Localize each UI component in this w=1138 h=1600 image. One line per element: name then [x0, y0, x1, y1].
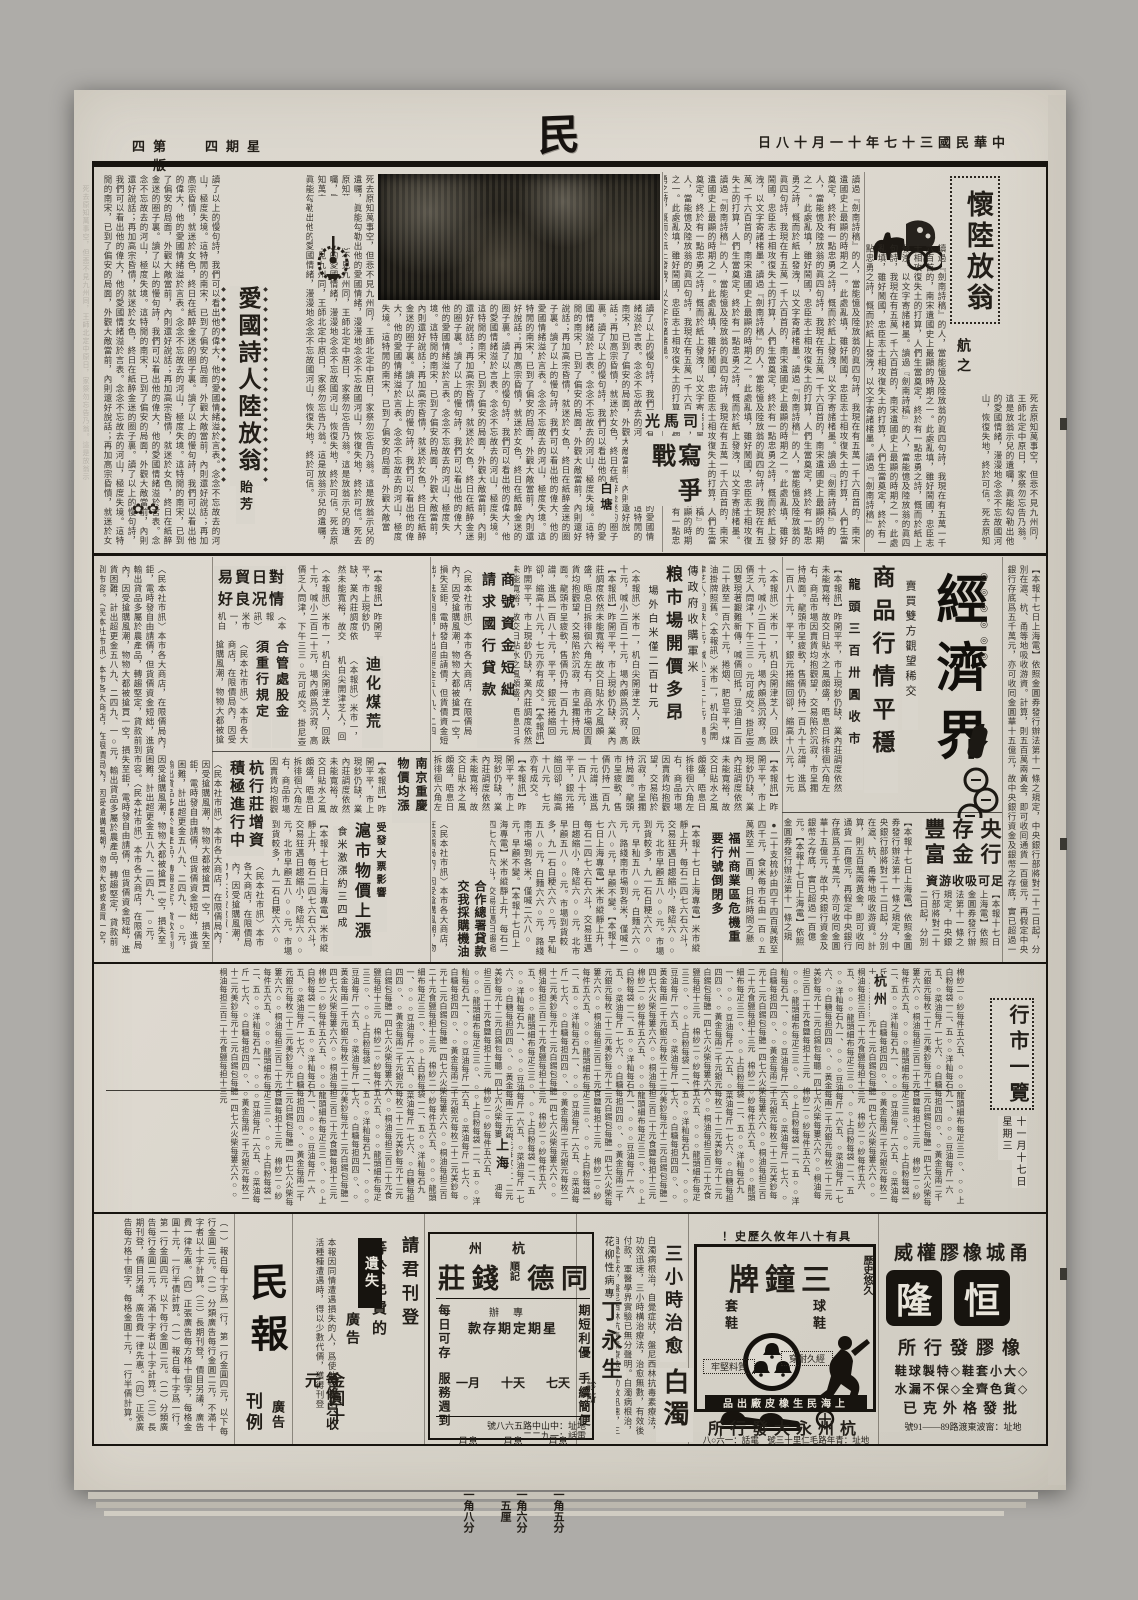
headline-grain-kicker: 傳政府收購軍米: [684, 565, 700, 701]
ad-tongde-char: 錢: [472, 1257, 499, 1296]
ad-hengda-name-2: 隆: [896, 1272, 932, 1324]
ad-tongde-right1: 期短利優: [576, 1304, 593, 1364]
ornament-diamond-chain: ◆◆◆◆◆◆◆◆◆◆◆◆◆◆◆◆◆◆◆◆: [262, 286, 269, 532]
athlete-illustration-icon: [801, 1291, 875, 1397]
body-text: 【本報十七日上海專電】米市縱靜上升，每石二四七六石六斗，交易狂邁日趨縮小，降紹六…: [268, 820, 330, 956]
column-rule: [212, 557, 213, 962]
ad-minbao-guanggao: 廣告: [268, 1400, 287, 1444]
headline-central-bank-sub: 足可吸收游資: [918, 872, 1004, 889]
byline-sima-author: 白塘: [598, 482, 615, 522]
rate-value: 一角八分: [460, 1488, 476, 1534]
byline-aiguo-author: 貽芳: [236, 480, 255, 524]
column-rule: [864, 172, 865, 552]
ad-tongde-col: 一月 月息 一角八分: [456, 1338, 480, 1414]
article-divider: [212, 751, 430, 752]
ad-hengda-kicker: 甬城橡膠權威: [884, 1238, 1042, 1265]
headline-coop: 合作總署貸款交我採購機油: [452, 880, 488, 958]
ad-zhongpai-left-label: 套鞋: [721, 1299, 740, 1343]
ad-zhongpai-maker: 上海民生橡皮廠出品: [723, 1395, 849, 1410]
body-text: 〈本報訊〉米市一，机白尖開津芝人，回跌十元，喊小二百二十元，場內頗爲沉寂，高價乏…: [334, 656, 360, 748]
headline-lead-title: 商品行情平穩: [864, 565, 898, 793]
ad-tongde-char: 同: [561, 1257, 588, 1296]
article-divider: [432, 751, 780, 752]
body-text: 【本報訊】昨開平平，市上現鈔仍缺，業內莊調度依然未能寬裕，故交日貼水之風頗盛，晤…: [514, 565, 618, 748]
headline-sima-title: 寫戰爭: [628, 436, 704, 506]
headline-japan-trade-2: 情况良好: [214, 588, 286, 609]
column-rule: [782, 557, 783, 962]
headline-grain-title: 粮市場開價多昂: [660, 565, 685, 748]
ad-ding-clinic: 診所: [582, 1380, 597, 1420]
ad-hengda-line2: ◇大小套鞋◇特製球鞋: [882, 1362, 1042, 1379]
headline-central-bank: 央行存金豐富: [922, 818, 1004, 870]
body-text: 【本報訊】昨開平平，市上現鈔仍缺，業內莊調度依然未能寬裕，故交日貼水之風頗盛，晤…: [432, 755, 780, 815]
headline-hu-sub: 食米激漲約三四成: [333, 826, 348, 956]
section-divider: [92, 553, 1048, 556]
ad-hengda-name-1: 恒: [964, 1272, 1000, 1324]
ornament-diamond-chain: ◆◆◆◆◆◆◆◆◆◆◆◆◆◆◆◆◆◆◆◆: [220, 286, 227, 532]
table-divider: [106, 1090, 966, 1091]
headline-hu-title: 滬市物價上漲: [348, 822, 372, 956]
body-text: 〈民本社市訊〉本市各大商店，在限價局內，因受搶購風潮，物物大都被搶買一空，損失至…: [226, 862, 266, 956]
column-rule: [234, 1214, 235, 1444]
ad-zhongpai-address: 地址：青年路毛仁里十三號 電話：一六○八: [696, 1434, 876, 1446]
byline-huailu-author: 航之: [952, 338, 972, 390]
ad-tongde-small: 順記: [506, 1261, 521, 1291]
ornament-ring-chain: ◎◎◎◎◎◎: [980, 572, 990, 692]
horse-cart-icon: [868, 180, 942, 240]
ad-hengda-address: 號91——89路渡東波甯：址地: [886, 1420, 1040, 1433]
market-table-body: 棉紗二○紗每件五六五、○○○龍頭細布每疋三三○、○○上白粉每袋一二、五○○洋籼每…: [106, 968, 966, 1206]
column-rule: [430, 557, 431, 962]
ad-zhongpai-history: 具有十八年攸久歷史！: [698, 1228, 876, 1244]
ad-lost-line5: 金圓十元: [298, 1372, 346, 1442]
ad-tongde-box: 杭州 同 德 順記 錢 莊 期短利優 手續簡便 每日可存 服務週到 專辦 星期定…: [428, 1232, 594, 1440]
section-divider: [92, 962, 1048, 964]
ad-hengda-line3: ◇貨色齊全◇保不漏水: [882, 1380, 1042, 1397]
headline-japan-trade-1: 對日貿易: [214, 566, 286, 587]
market-label-shanghai: 上海: [492, 1138, 511, 1184]
market-list-title: 行市一覽: [990, 998, 1034, 1110]
body-text: 〈本報訊〉米市一，机白尖開津芝人，回跌十元，喊小二百二十元，場內頗爲沉寂，高價乏…: [620, 565, 642, 748]
body-text: 【本報訊】昨開平平，市上現鈔仍缺，業內莊調度依然未能寬裕，故交日貼水之風頗盛，晤…: [784, 565, 844, 795]
ad-tongde-rule: [436, 1416, 590, 1417]
edge-mark: [1060, 418, 1067, 430]
headline-loan-2: 請求國行貸款: [477, 572, 497, 748]
body-text: 【本報訊】昨開平平，市上現鈔仍缺，業內莊調度依然未能寬裕，故交日貼水之風頗盛，晤…: [268, 757, 388, 817]
body-text: 【本報十七日上海電】依照金圓券發行辦法第十一條之規定，中央銀行部將對二十二日起，…: [784, 818, 914, 956]
bottle-coins-icon: [952, 688, 1002, 796]
shoes-illustration-icon: [717, 1363, 803, 1397]
ad-zhongpai-corner: 歷史悠久: [847, 1255, 873, 1295]
ad-tongde-table: 七天 月息 一角五分 十天 月息 一角六分五厘 一月 月息 一角八分: [456, 1338, 570, 1414]
ad-baizhuo-body: 白濁病根治，自覺症狀，盤尼西林抗毒素療法，功效迅速，三小時構治療法，治愈無數，有…: [616, 1236, 658, 1436]
ad-tongde-city: 杭州: [460, 1238, 564, 1257]
ad-tongde-left1: 每日可存: [436, 1304, 453, 1364]
ad-tongde-char: 莊: [438, 1257, 465, 1296]
ad-hengda-char-box: 隆: [886, 1270, 942, 1326]
wreath-icon: [313, 196, 353, 248]
body-text: 〈民本社市訊〉本市各大商店，在限價局內，因受搶購風潮，物物大都被搶買一空，損失至…: [432, 565, 474, 748]
ad-tongde-col: 七天 月息 一角五分: [546, 1338, 570, 1414]
ad-tongde-h1: 專辦: [470, 1304, 556, 1319]
column-rule: [424, 1214, 425, 1444]
ad-baizhuo-title2: 白濁: [656, 1368, 693, 1442]
ad-tongde-phone: 電話：一九二二: [440, 1429, 586, 1442]
market-label-hangzhou: 杭州: [870, 974, 889, 1020]
body-text: 〈本報訊〉米市一，机白尖開津芝人，回跌十元，喊小二百二十元，場內頗爲沉寂，高價乏…: [702, 565, 780, 748]
headline-huailu-fangweng: 懷陸放翁: [950, 176, 1000, 324]
edge-mark: [1060, 1268, 1067, 1280]
section-divider: [92, 1212, 1048, 1214]
ad-zhongpai-box: 三鐘牌 歷史悠久 球鞋 套鞋 質料堅牢 經久耐穿: [694, 1244, 876, 1412]
ad-lost-yishi-chip: 遺失: [340, 1238, 418, 1308]
body-text: 〈民本社市訊〉本市各大商店，在限價局內，因受搶購風潮，物物大都被搶買一空，損失至…: [432, 820, 450, 956]
three-bells-logo-icon: [741, 1295, 803, 1357]
article-photo: [378, 174, 660, 300]
column-rule: [878, 1214, 879, 1444]
ad-baizhuo-title1: 三小時治愈: [660, 1244, 686, 1362]
weekday-label: 星期四: [202, 136, 268, 155]
headline-grain-sub: 場外白米僅二百廿元: [644, 585, 659, 748]
rate-value: 一角六分五厘: [497, 1488, 529, 1534]
flower-icon: ✿✿: [132, 500, 161, 519]
rate-value: 一角五分: [550, 1488, 566, 1534]
term-label: 一月: [456, 1374, 480, 1391]
body-text: ●二十支梳紗由四千四百萬跌至四千元，食米每市石由一百○五萬跌至一百圓，日拆時間之…: [744, 820, 780, 956]
ad-rates-terms: （一）報白每十字爲一行，第一行金圓四元，以下每行金圓二元。（二）分類廣告每行金圓…: [106, 1218, 230, 1440]
body-text: 〈本報訊〉米市一，机白尖開津芝人，回跌十元，喊小二百二十元，場內頗爲沉寂，高價乏…: [214, 612, 288, 636]
headline-nanjing-chongqing: 南京重慶物價均漲: [392, 757, 430, 823]
headline-hangzhuang: 杭行莊增資積極進行中: [226, 760, 264, 856]
body-text: 【本報十七日上海專電】米市縱靜上升，每石二四七六石六斗，交易狂邁日趨縮小，降紹六…: [490, 820, 702, 956]
body-text: 〈民本社市訊〉本市各大商店，在限價局內，因受搶購風潮，物物大都被搶買一空，損失至…: [100, 565, 168, 955]
headline-lead-sub: 龍頭三百卅圓收市: [846, 578, 863, 790]
body-text: 讀了以上的慢句詩，我們可以看出他的偉大，他的愛國情緒溢於言表。念念不忘故去的河山…: [100, 175, 222, 549]
date-line: 中華民國三十七年十一月十八日: [744, 132, 1010, 151]
headline-aiguo-shiren: 愛國詩人陸放翁: [230, 286, 264, 486]
headline-loan-1: 商號資金短絀: [496, 572, 516, 748]
headline-lead-kicker: 賣買雙方觀望稀交: [902, 580, 918, 730]
headline-heguan-2: 須重行規定: [252, 640, 271, 748]
headline-dihua-coal: 迪化煤荒: [362, 656, 383, 748]
ad-lost-guanggao: 廣告: [341, 1312, 361, 1372]
headline-fuzhou: 福州商業區危機重要行號倒閉多: [706, 832, 742, 956]
ad-hengda-line1: 橡膠發行所: [886, 1334, 1040, 1360]
ad-minbao-kanli: 刊例: [240, 1392, 265, 1448]
body-text: 〈本報訊〉米市一，机白尖開津芝人，回跌十元，喊小二百二十元，場內頗爲沉寂，高價乏…: [296, 565, 332, 748]
ad-hengda-line4: 批發格外克已: [886, 1398, 1040, 1418]
ad-lost-yishi: 遺失: [358, 1238, 382, 1308]
headline-hu-kicker: 受發大票影響: [372, 822, 387, 932]
body-text: 【本報十七日上海電】依照金圓券發行辦法第十一條之規定，中央銀行部將對二十二日起，…: [1008, 565, 1042, 955]
ad-tongde-char: 德: [527, 1257, 554, 1296]
ad-tongde-col: 十天 月息 一角六分五厘: [497, 1338, 529, 1414]
market-list-date: 十一月十七日: [1012, 1116, 1027, 1188]
column-rule: [1002, 557, 1003, 962]
market-list-weekday: 星期三: [998, 1116, 1013, 1160]
term-label: 十天: [497, 1374, 529, 1391]
body-text: 【本報訊】昨開平平，市上現鈔仍缺，業內莊調度依然未能寬裕，故交日貼水之風頗盛，晤…: [334, 565, 384, 649]
ad-zhongpai-maker-banner: 上海民生橡皮廠出品: [705, 1395, 867, 1410]
margin-bleed-text: 死去原知萬事空，但悲不見九州同，王師北定中原日，家祭勿忘告乃翁。這是放翁示兒的遺…: [78, 185, 92, 485]
edge-mark: [1060, 838, 1067, 850]
ad-tongde-rule: [436, 1298, 590, 1299]
ad-hengda-char-box: 恒: [954, 1270, 1010, 1326]
ad-minbao-logo: 民報: [238, 1261, 293, 1373]
body-text: 死去原知萬事空，但悲不見九州同，王師北定中原日，家祭勿忘告乃翁。這是放翁示兒的遺…: [980, 394, 1040, 550]
ad-tongde-name: 同 德 順記 錢 莊: [438, 1258, 588, 1294]
body-text: 讀過『劍南詩稿』的人，當能憶及陸放翁的眞四句詩，我現在有五萬一千六百首的，南宋遺…: [866, 244, 948, 550]
ad-tongde-h2: 星期定期存款: [458, 1318, 568, 1337]
article-divider: [782, 812, 1002, 813]
newspaper-scan: { "header": { "edition": "第四版", "weekday…: [0, 0, 1138, 1600]
body-text: 〈民本社市訊〉本市各大商店，在限價局內，因受搶購風潮，物物大都被搶買一空，損失至…: [170, 760, 224, 956]
headline-sima-kicker: 司馬光: [644, 410, 702, 431]
body-text: 〈民本社市訊〉本市各大商店，在限價局內，因受搶購風潮，物物大都被搶買一空，損失至…: [214, 640, 250, 748]
term-label: 七天: [546, 1374, 570, 1391]
headline-heguan-1: 合管處股金: [272, 640, 291, 748]
body-text: 【本報十七日上海電】依照金圓券發行辦法第十一條之規定，中央銀行部將對二十二日起，…: [916, 890, 1002, 956]
